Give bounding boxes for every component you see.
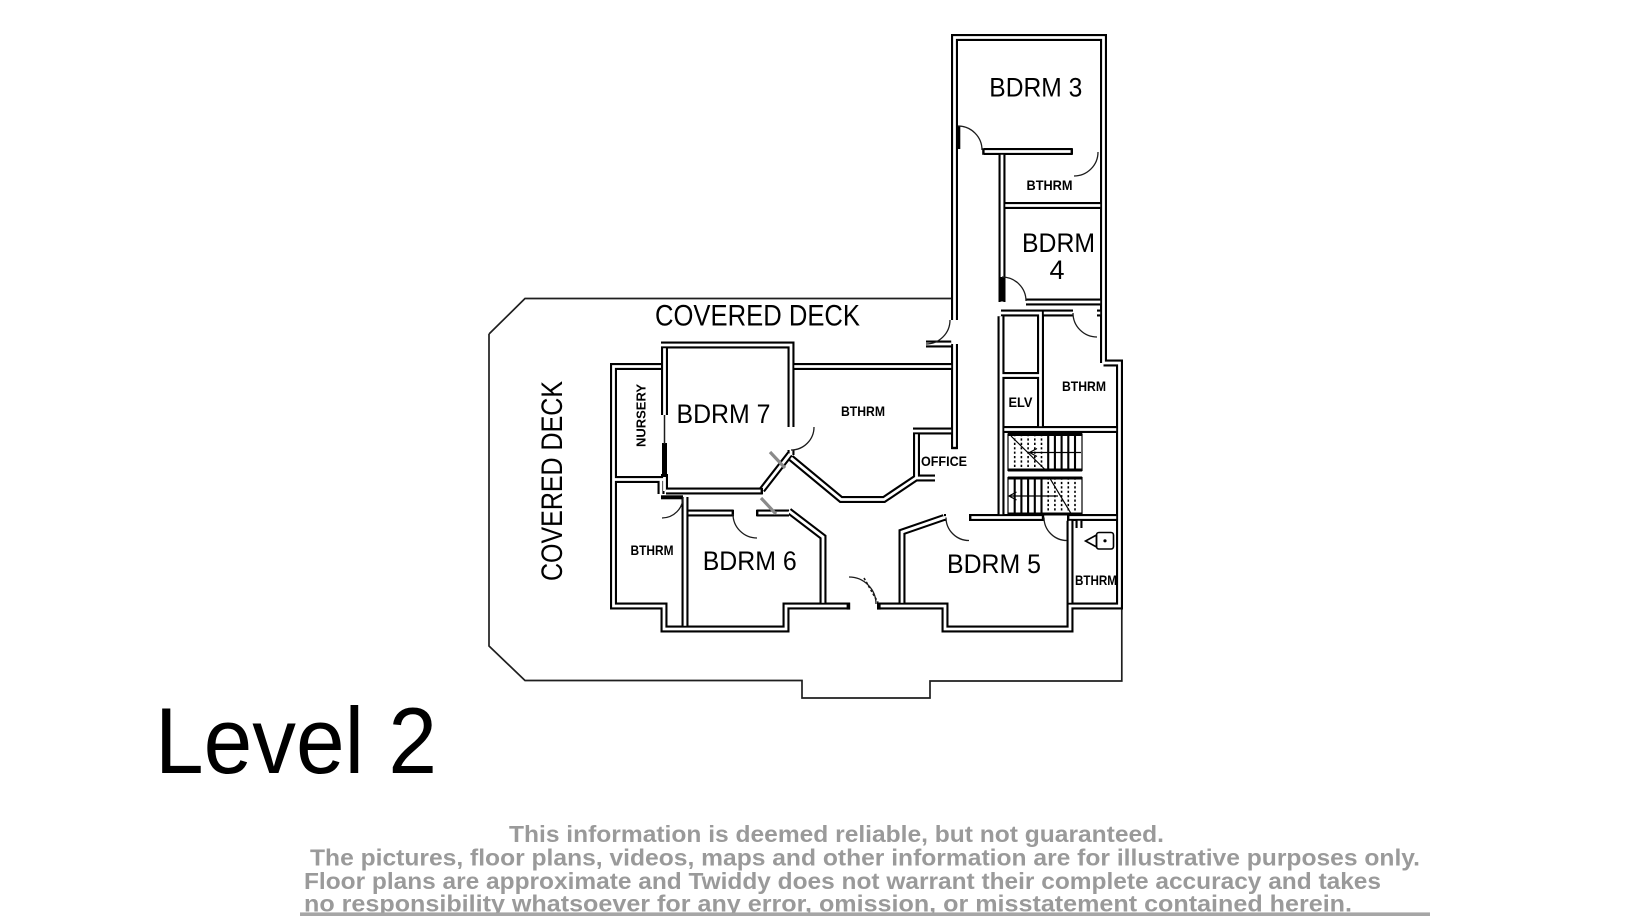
svg-text:4: 4: [1049, 255, 1064, 285]
svg-text:This information is deemed rel: This information is deemed reliable, but…: [509, 821, 1164, 847]
svg-text:OFFICE: OFFICE: [921, 453, 967, 469]
svg-text:BDRM 5: BDRM 5: [947, 549, 1041, 579]
svg-text:NURSERY: NURSERY: [634, 384, 649, 447]
svg-text:COVERED DECK: COVERED DECK: [536, 381, 569, 581]
svg-text:BTHRM: BTHRM: [1027, 177, 1073, 193]
svg-text:BDRM 3: BDRM 3: [989, 73, 1082, 103]
svg-text:The pictures, floor plans, vid: The pictures, floor plans, videos, maps …: [310, 845, 1420, 871]
svg-text:no responsibility whatsoever f: no responsibility whatsoever for any err…: [304, 891, 1352, 916]
svg-text:BTHRM: BTHRM: [1062, 378, 1106, 394]
svg-text:COVERED DECK: COVERED DECK: [655, 300, 860, 333]
svg-text:BDRM: BDRM: [1022, 228, 1095, 258]
svg-text:Level 2: Level 2: [155, 688, 437, 793]
svg-text:BTHRM: BTHRM: [841, 403, 885, 419]
svg-text:BTHRM: BTHRM: [631, 542, 674, 558]
svg-text:BDRM 7: BDRM 7: [677, 399, 771, 429]
svg-text:ELV: ELV: [1009, 394, 1034, 410]
svg-text:BTHRM: BTHRM: [1075, 572, 1117, 588]
svg-text:BDRM 6: BDRM 6: [703, 546, 797, 576]
